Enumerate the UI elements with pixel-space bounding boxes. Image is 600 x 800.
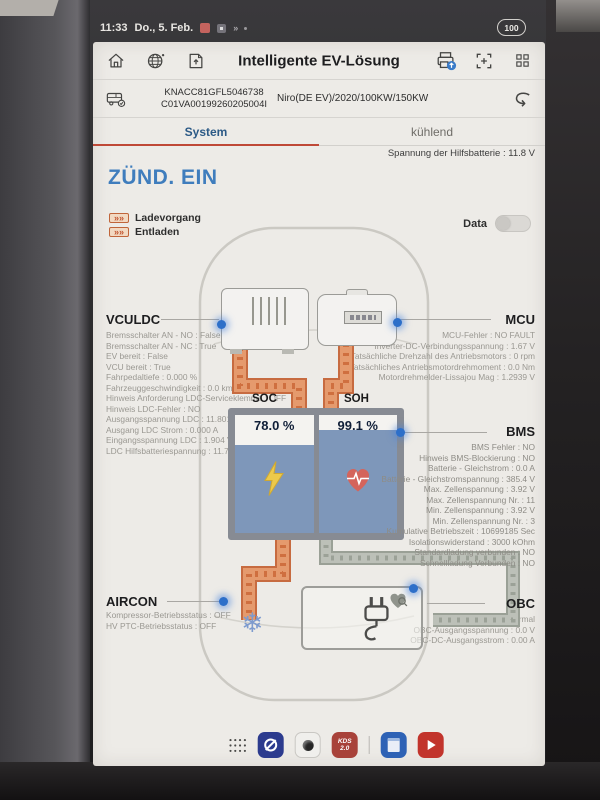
section-title-vculdc: VCULDC	[106, 312, 160, 327]
section-title-mcu: MCU	[505, 312, 535, 327]
detail-line: Max. Zellenspannung : 3.92 V	[381, 484, 535, 495]
dock-divider	[369, 736, 370, 754]
vcu-node-dot	[217, 320, 226, 329]
report-export-icon[interactable]	[185, 50, 207, 72]
vculdc-callout-line	[161, 319, 219, 320]
obc-heart-icon	[387, 590, 409, 615]
notification-dot-icon	[244, 27, 247, 30]
apps-grid-icon[interactable]	[511, 50, 533, 72]
flow-legend: Ladevorgang Entladen	[109, 212, 201, 238]
notification-icon-app	[217, 24, 226, 33]
app-screen: Intelligente EV-Lösung KNACC81GFL5046738…	[93, 42, 545, 766]
health-heart-icon	[341, 463, 375, 500]
dock-app-camera-icon[interactable]	[295, 732, 321, 758]
hv-battery-graphic: 78.0 % 99.1 %	[228, 408, 404, 540]
print-share-icon[interactable]	[435, 50, 457, 72]
charging-flow-icon	[109, 213, 129, 223]
background-corner-left	[0, 0, 59, 16]
soc-value: 78.0 %	[235, 418, 314, 433]
section-title-aircon: AIRCON	[106, 594, 157, 609]
legend-discharging-label: Entladen	[135, 226, 179, 238]
vin-number: KNACC81GFL5046738	[161, 87, 267, 99]
section-title-bms: BMS	[506, 424, 535, 439]
aircon-node-dot	[219, 597, 228, 606]
dock-app-files-icon[interactable]	[381, 732, 407, 758]
dock-app-kds-icon[interactable]: KDS 2.0	[332, 732, 358, 758]
detail-line: Standardladung verbunden : NO	[381, 547, 535, 558]
screen-capture-icon[interactable]	[473, 50, 495, 72]
all-apps-icon[interactable]	[229, 738, 247, 753]
vcu-connector	[282, 349, 294, 354]
mcu-node-dot	[393, 318, 402, 327]
tab-system[interactable]: System	[93, 118, 319, 145]
dock: KDS 2.0	[229, 732, 444, 758]
aux-battery-voltage: Spannung der Hilfsbatterie : 11.8 V	[388, 148, 535, 159]
home-icon[interactable]	[105, 50, 127, 72]
data-toggle-label: Data	[463, 218, 487, 230]
tablet-bezel-right	[546, 0, 600, 800]
data-toggle-group: Data	[463, 215, 531, 232]
battery-indicator: 100	[497, 19, 526, 36]
page-title: Intelligente EV-Lösung	[238, 52, 400, 69]
vehicle-id: C01VA00199260205004I	[161, 99, 267, 111]
aircon-callout-line	[167, 601, 221, 602]
snowflake-icon: ❄	[241, 608, 264, 639]
kds-label-top: KDS	[338, 738, 352, 745]
soc-cell: 78.0 %	[235, 415, 314, 533]
mcu-display	[344, 311, 382, 324]
soh-value: 99.1 %	[319, 418, 398, 433]
detail-line: Min. Zellenspannung Nr. : 3	[381, 516, 535, 527]
notification-icon-red	[200, 23, 210, 33]
mcu-connector	[346, 289, 368, 295]
battery-percent: 100	[504, 23, 518, 33]
soc-label: SOC	[252, 393, 277, 405]
lightning-icon	[261, 461, 287, 502]
detail-line: BMS Fehler : NO	[381, 442, 535, 453]
toggle-knob	[497, 217, 510, 230]
vcu-ldc-unit	[221, 288, 309, 350]
bms-details: BMS Fehler : NOHinweis BMS-Blockierung :…	[381, 442, 535, 568]
date: Do., 5. Feb.	[135, 22, 194, 34]
obc-node-dot	[409, 584, 418, 593]
legend-charging-label: Ladevorgang	[135, 212, 201, 224]
tablet-bezel-left	[0, 0, 90, 800]
dock-app-video-icon[interactable]	[418, 732, 444, 758]
vcu-vents	[252, 297, 286, 325]
notification-more-icon: »	[233, 23, 237, 33]
vehicle-diagnostic-icon[interactable]	[105, 88, 127, 110]
vin-block[interactable]: KNACC81GFL5046738 C01VA00199260205004I	[161, 87, 267, 111]
dock-app-browser-icon[interactable]	[258, 732, 284, 758]
tablet-bezel-bottom	[0, 762, 600, 800]
globe-icon[interactable]	[145, 50, 167, 72]
vehicle-model: Niro(DE EV)/2020/100KW/150KW	[277, 93, 428, 104]
discharging-flow-icon	[109, 227, 129, 237]
detail-line: Min. Zellenspannung : 3.92 V	[381, 505, 535, 516]
clock: 11:33	[100, 22, 128, 34]
detail-line: Schnellladung Verbunden : NO	[381, 558, 535, 569]
ignition-status: ZÜND. EIN	[108, 166, 218, 190]
section-title-obc: OBC	[506, 596, 535, 611]
soh-label: SOH	[344, 393, 369, 405]
detail-line: Hinweis BMS-Blockierung : NO	[381, 453, 535, 464]
tab-cooling[interactable]: kühlend	[319, 118, 545, 145]
return-icon[interactable]	[511, 88, 533, 110]
detail-line: Isolationswiderstand : 3000 kOhm	[381, 537, 535, 548]
obc-callout-line	[427, 603, 485, 604]
detail-line: Max. Zellenspannung Nr. : 11	[381, 495, 535, 506]
vehicle-bar: KNACC81GFL5046738 C01VA00199260205004I N…	[93, 80, 545, 118]
detail-line: Batterie - Gleichstrom : 0.0 A	[381, 463, 535, 474]
status-bar: 11:33 Do., 5. Feb. »	[100, 22, 247, 34]
tab-bar: System kühlend	[93, 118, 545, 146]
bms-node-dot	[396, 428, 405, 437]
detail-line: Batterie - Gleichstromspannung : 385.4 V	[381, 474, 535, 485]
mcu-inverter-unit	[317, 294, 397, 346]
detail-line: Kumulative Betriebszeit : 10699185 Sec	[381, 526, 535, 537]
vcu-connector	[230, 349, 242, 354]
background-corner-right	[556, 0, 600, 32]
mcu-callout-line	[401, 319, 491, 320]
app-header: Intelligente EV-Lösung	[93, 42, 545, 80]
kds-label-bottom: 2.0	[340, 745, 349, 752]
data-toggle[interactable]	[495, 215, 531, 232]
bms-callout-line	[405, 432, 487, 433]
